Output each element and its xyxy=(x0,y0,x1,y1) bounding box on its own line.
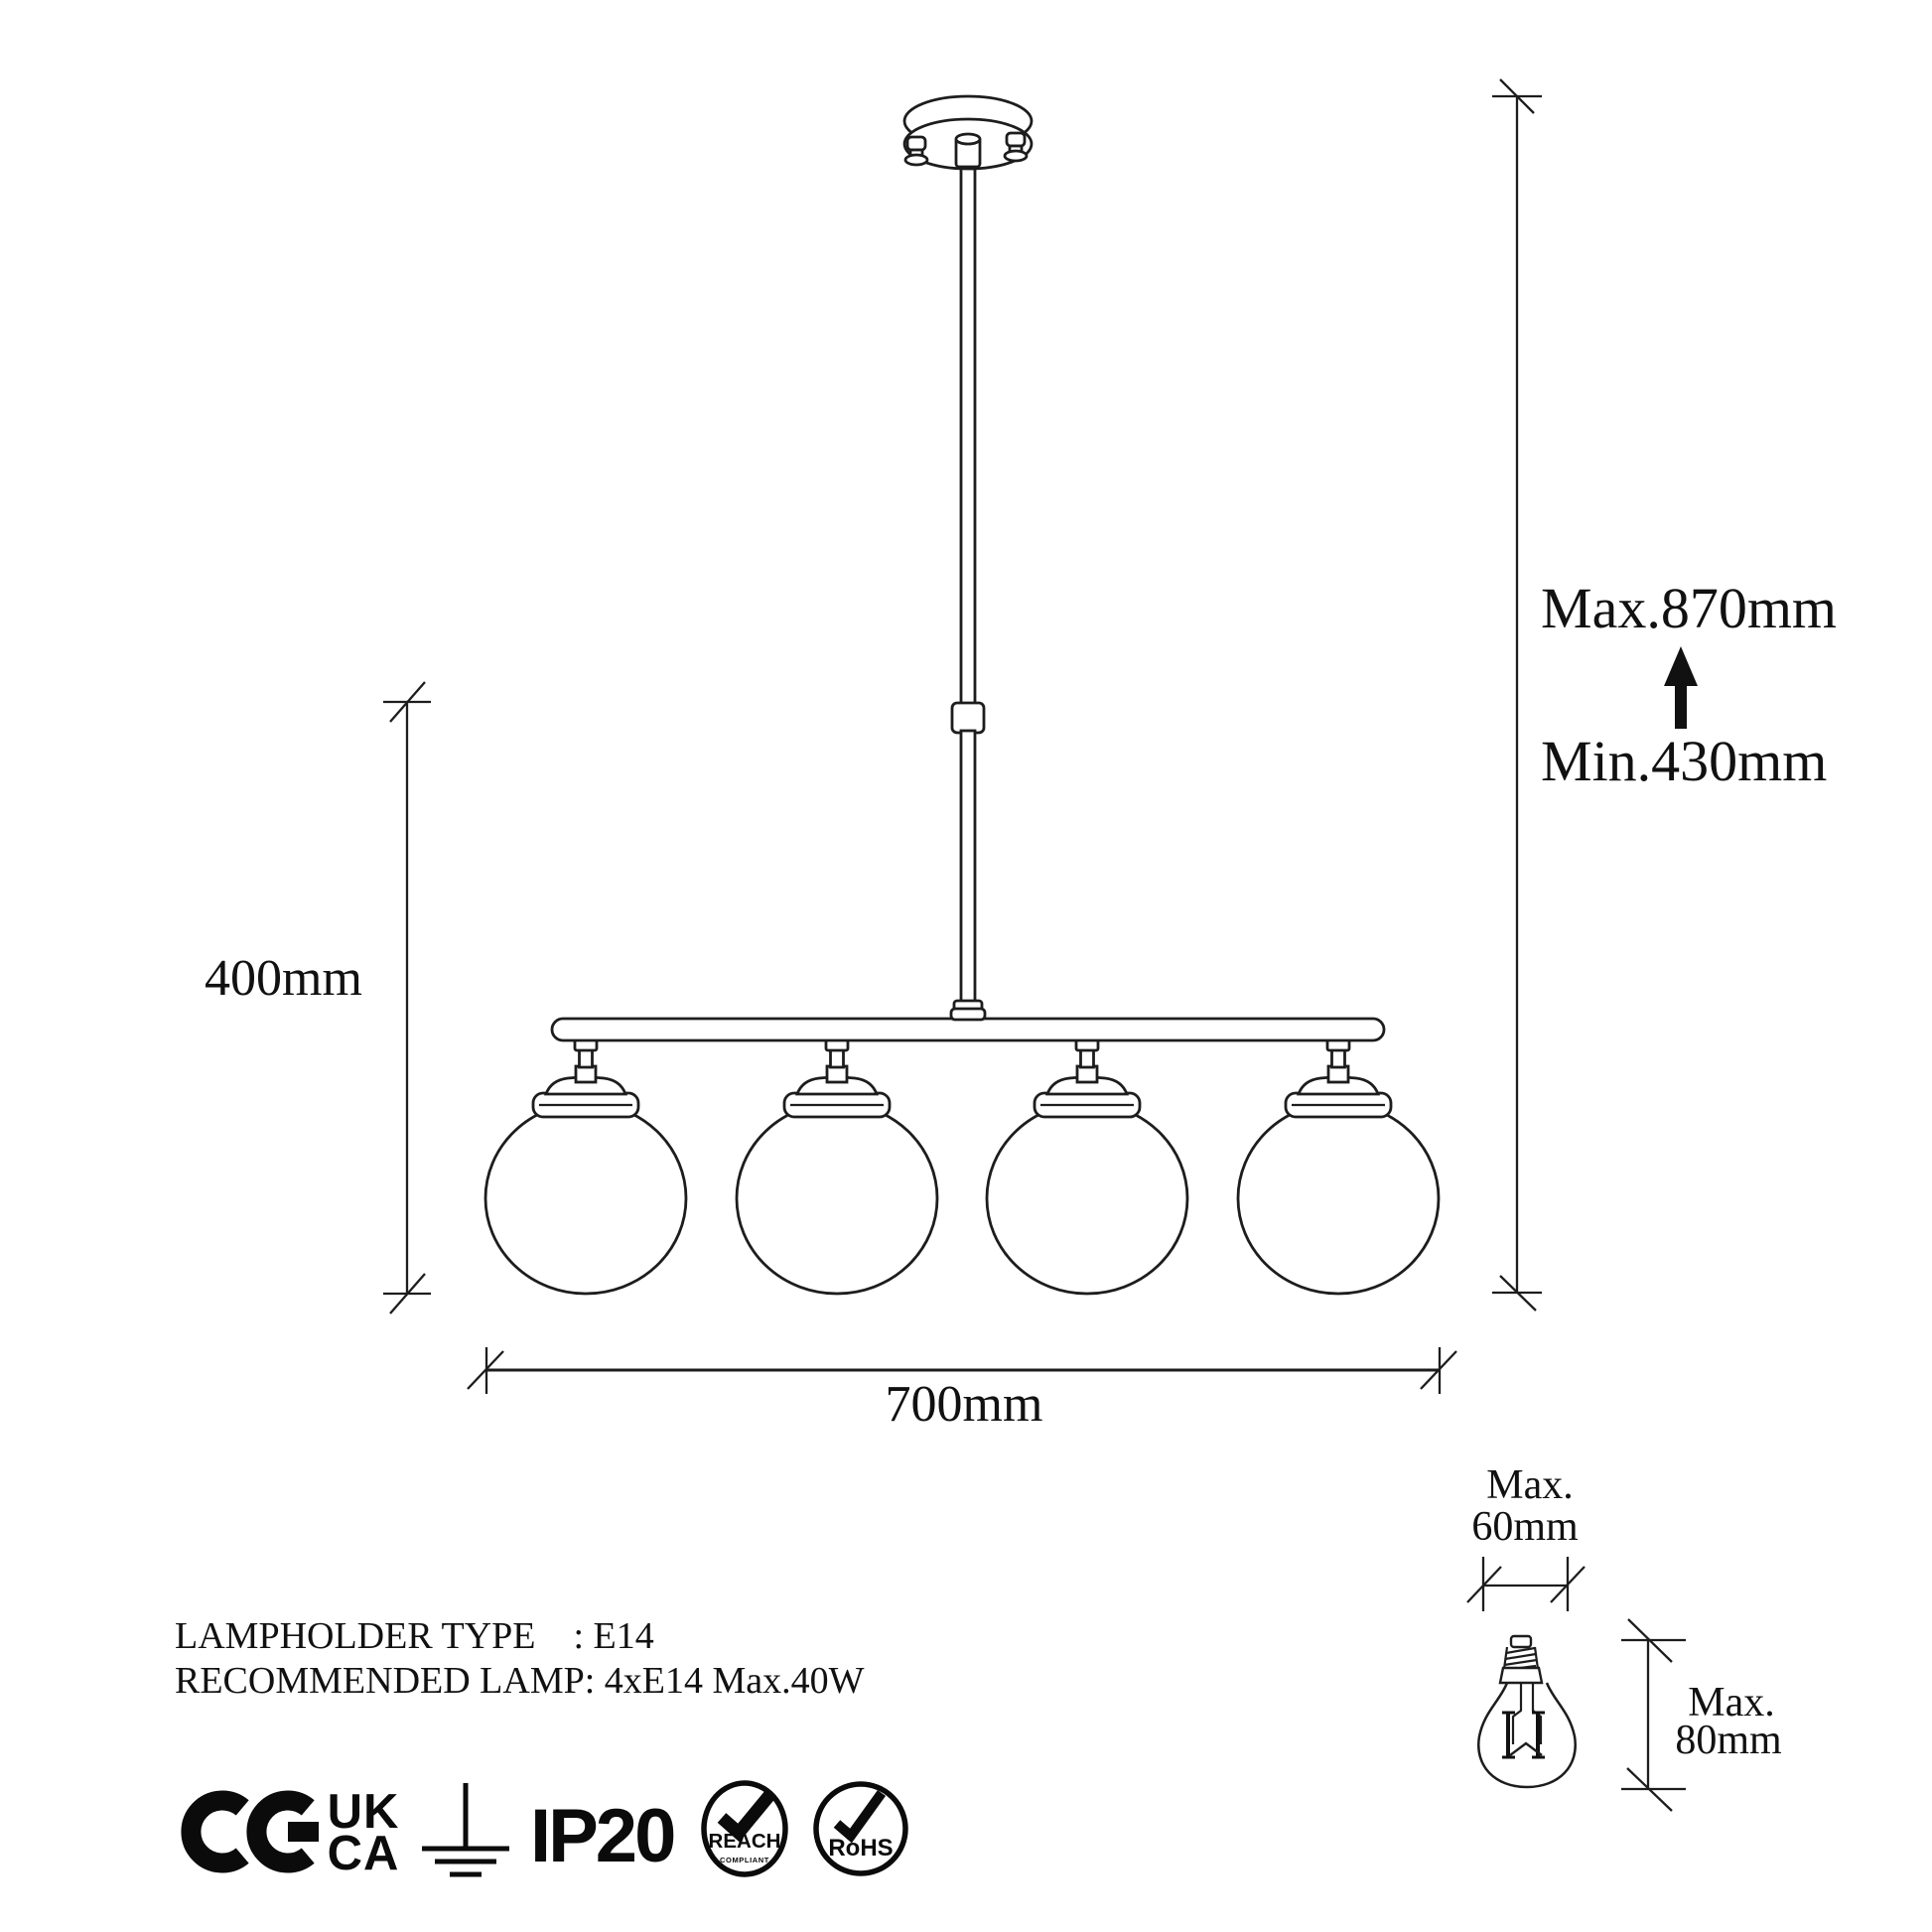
dimension-line-total-height xyxy=(1492,79,1542,1311)
reach-label: REACH xyxy=(709,1830,781,1853)
ukca-bottom-label: CA xyxy=(328,1827,400,1880)
globe-light-unit-3 xyxy=(987,1037,1187,1294)
rod-connector xyxy=(952,703,984,733)
fixture-bar xyxy=(552,1019,1384,1040)
checkmark-icon xyxy=(722,1793,771,1833)
ukca-mark: UK CA xyxy=(328,1785,400,1880)
ip20-rating: IP20 xyxy=(530,1794,674,1878)
min-height-label: Min.430mm xyxy=(1541,729,1827,793)
dimension-line-fixture-drop xyxy=(383,682,431,1313)
rohs-badge: RoHS xyxy=(816,1784,905,1873)
recommended-lamp-line: RECOMMENDED LAMP: 4xE14 Max.40W xyxy=(175,1660,865,1702)
checkmark-icon xyxy=(837,1793,882,1836)
dimension-line-bulb-height xyxy=(1621,1619,1686,1811)
globe-light-unit-2 xyxy=(737,1037,937,1294)
dimension-line-bulb-width xyxy=(1467,1557,1585,1611)
ceiling-canopy xyxy=(904,96,1032,169)
suspension-rod xyxy=(951,165,985,1020)
pendant-lamp-drawing xyxy=(485,96,1439,1294)
globe-light-unit-1 xyxy=(485,1037,686,1294)
globe-light-unit-4 xyxy=(1238,1037,1439,1294)
lamp-technical-diagram: Max.870mm Min.430mm 400mm 700mm xyxy=(0,0,1932,1932)
bulb-diagram: Max. 60mm Max. 80mm xyxy=(1467,1462,1782,1811)
earth-ground-icon xyxy=(422,1783,509,1874)
fixture-width-label: 700mm xyxy=(886,1376,1043,1433)
bulb-width-label: 60mm xyxy=(1471,1504,1579,1550)
max-height-label: Max.870mm xyxy=(1541,576,1837,640)
up-arrow-icon xyxy=(1664,646,1698,729)
bulb-height-label: 80mm xyxy=(1675,1718,1782,1763)
certification-marks: UK CA IP20 REACH COMPLIANT RoHS xyxy=(191,1783,905,1880)
ce-mark-icon xyxy=(191,1801,319,1863)
bulb-width-max-label: Max. xyxy=(1486,1462,1574,1508)
reach-compliant-label: COMPLIANT xyxy=(720,1856,769,1864)
reach-badge: REACH COMPLIANT xyxy=(704,1783,785,1874)
rohs-label: RoHS xyxy=(828,1835,893,1862)
lampholder-type-line: LAMPHOLDER TYPE : E14 xyxy=(175,1615,654,1657)
e14-bulb-icon xyxy=(1478,1636,1575,1787)
fixture-drop-label: 400mm xyxy=(205,950,362,1007)
